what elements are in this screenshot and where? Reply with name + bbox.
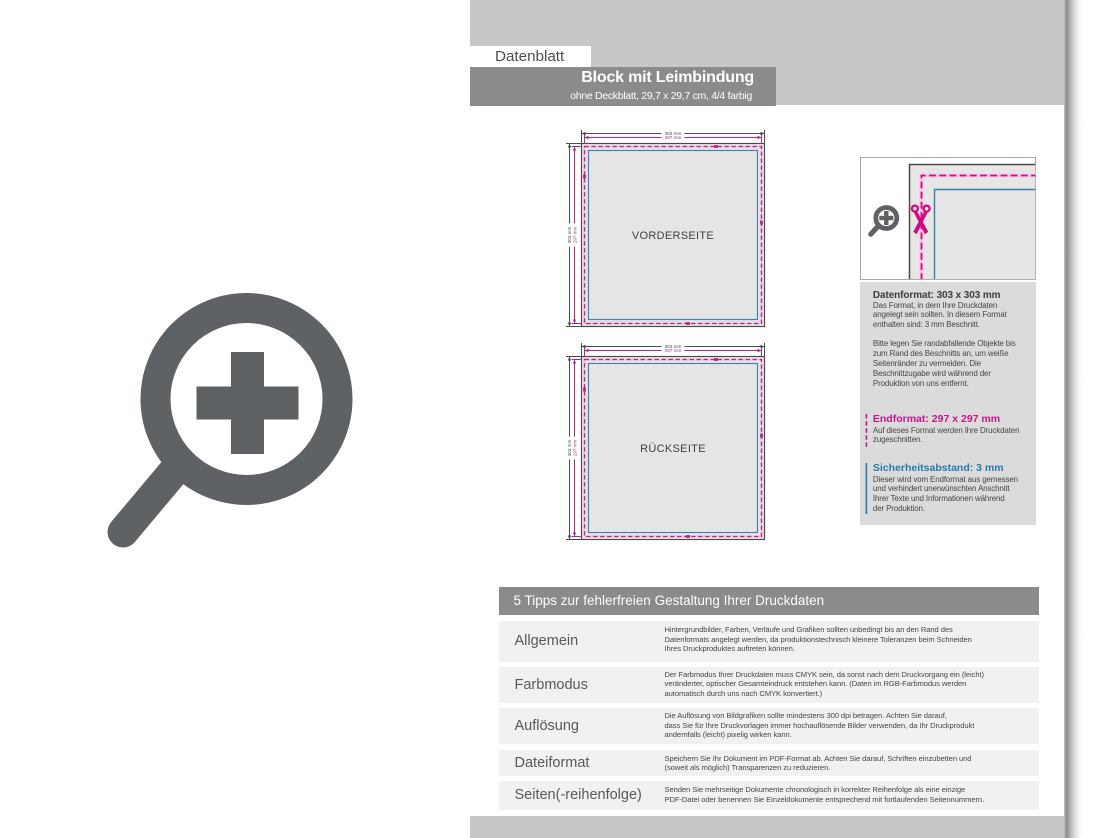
svg-text:297 mm: 297 mm <box>572 440 577 457</box>
svg-text:297 mm: 297 mm <box>572 227 577 244</box>
svg-text:RÜCKSEITE: RÜCKSEITE <box>640 443 706 455</box>
svg-text:297 mm: 297 mm <box>665 135 682 140</box>
svg-text:VORDERSEITE: VORDERSEITE <box>632 230 714 242</box>
svg-text:297 mm: 297 mm <box>665 348 682 353</box>
